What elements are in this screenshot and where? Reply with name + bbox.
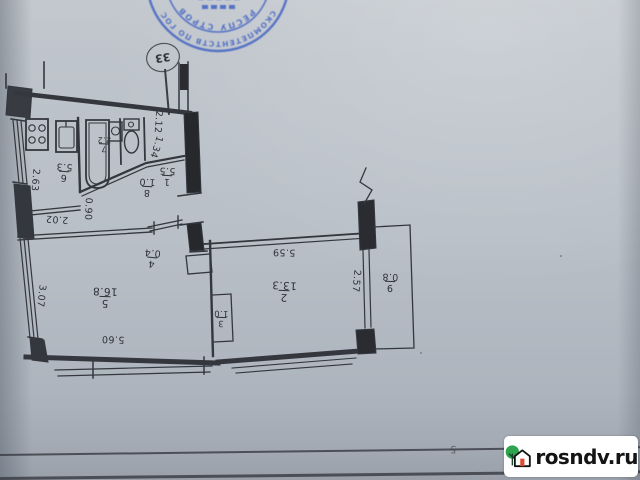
room-label-8: 81.0 — [138, 176, 155, 199]
dimension-label: 2.12 — [152, 110, 165, 133]
dimension-label: 0.90 — [82, 197, 94, 220]
dimension-label: 3.07 — [34, 284, 47, 308]
dimension-label: 2.02 — [45, 213, 68, 226]
watermark-text: rosndv.ru — [535, 445, 638, 469]
watermark-badge[interactable]: rosndv.ru — [504, 436, 638, 477]
logo-house-door — [520, 458, 524, 465]
photographed-floorplan-page: СКОМПЕТЕНТСТВ ПО ГОСУДАРСТВЕННЫМ РЕСПУ С… — [0, 0, 640, 480]
plan-labels: 15.5213.331.040.4516.865.372.281.090.82.… — [0, 0, 640, 480]
room-label-5: 516.8 — [92, 285, 118, 310]
dimension-label: 2.57 — [350, 269, 363, 293]
room-label-2: 213.3 — [271, 278, 297, 303]
dimension-label: 2.63 — [29, 168, 42, 192]
room-label-3: 31.0 — [213, 308, 228, 328]
room-label-1: 15.5 — [158, 165, 175, 188]
dimension-label: 1.34 — [147, 134, 164, 159]
dimension-label: 5.60 — [101, 333, 124, 345]
page-mark-left: 5 — [450, 443, 457, 454]
watermark-logo — [504, 441, 532, 473]
paper-speck — [420, 352, 422, 354]
dimension-label: 5.59 — [273, 246, 296, 257]
paper-speck — [560, 255, 562, 257]
room-label-6: 65.3 — [55, 160, 73, 183]
room-label-7: 72.2 — [97, 134, 112, 153]
room-label-9: 90.8 — [381, 271, 398, 293]
room-label-4: 40.4 — [143, 246, 162, 270]
